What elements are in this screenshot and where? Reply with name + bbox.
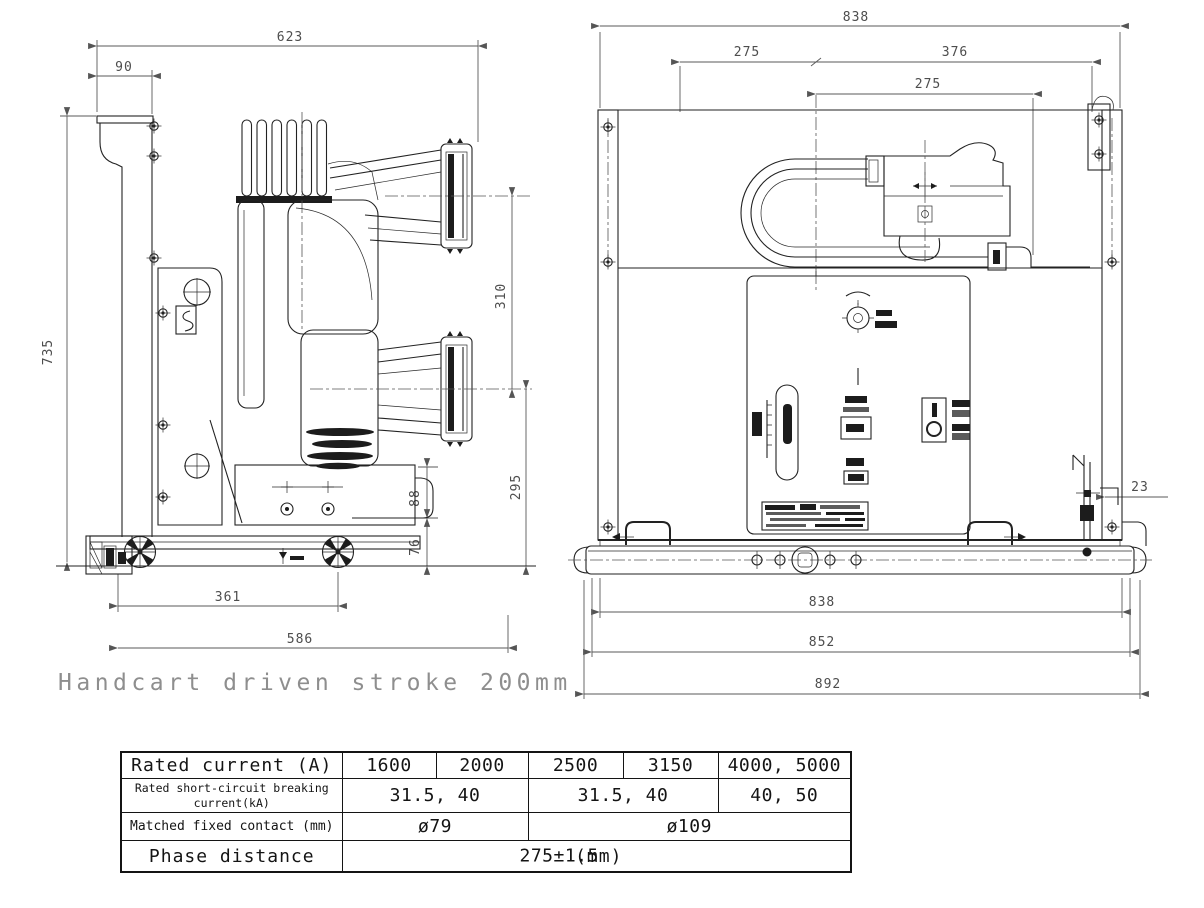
dim-852: 852 bbox=[809, 635, 835, 650]
breaking-current-label: Rated short-circuit breaking current(kA) bbox=[121, 779, 342, 813]
phase-distance-cell: (mm) 275±1.5 bbox=[342, 841, 851, 873]
rated-current-2000: 2000 bbox=[436, 752, 528, 779]
drawing-sheet: 623 90 735 310 295 88 76 361 586 bbox=[0, 0, 1204, 908]
dim-586: 586 bbox=[287, 632, 313, 647]
bolt-icon bbox=[1105, 255, 1120, 270]
breaking-current-value-3: 40, 50 bbox=[718, 779, 851, 813]
table-row: Rated current (A) 1600 2000 2500 3150 40… bbox=[121, 752, 851, 779]
bolt-icon bbox=[1105, 520, 1120, 535]
pole-support-block bbox=[235, 465, 433, 525]
front-view-dimensions: 838 275 376 275 23 838 852 892 bbox=[584, 10, 1168, 699]
dim-275-phase: 275 bbox=[915, 77, 941, 92]
breaking-current-label-line1: Rated short-circuit breaking bbox=[122, 781, 342, 795]
bolt-icon bbox=[147, 119, 162, 134]
opening-button-group bbox=[844, 458, 868, 484]
rated-current-1600: 1600 bbox=[342, 752, 436, 779]
phase-distance-label: Phase distance bbox=[121, 841, 342, 873]
interlock-hook-icon bbox=[183, 311, 193, 331]
rated-current-3150: 3150 bbox=[623, 752, 718, 779]
mechanism-housing bbox=[147, 251, 243, 526]
dim-838-bottom: 838 bbox=[809, 595, 835, 610]
left-handle bbox=[626, 522, 670, 545]
fixed-contact-value-109: ø109 bbox=[528, 813, 851, 841]
fixed-contact-value-79: ø79 bbox=[342, 813, 528, 841]
secondary-circuit bbox=[741, 95, 1090, 292]
breaking-current-value-2: 31.5, 40 bbox=[528, 779, 718, 813]
dim-623: 623 bbox=[277, 30, 303, 45]
phase-distance-value: 275±1.5 bbox=[520, 846, 599, 867]
table-row: Phase distance (mm) 275±1.5 bbox=[121, 841, 851, 873]
fixed-contact-label: Matched fixed contact (mm) bbox=[121, 813, 342, 841]
closing-button-group bbox=[841, 396, 871, 439]
on-off-indicator bbox=[922, 398, 970, 442]
right-handle bbox=[968, 522, 1012, 545]
dim-892: 892 bbox=[815, 677, 841, 692]
bolt-icon bbox=[601, 255, 616, 270]
side-view: 623 90 735 310 295 88 76 361 586 bbox=[41, 30, 536, 653]
side-latch bbox=[1073, 455, 1118, 557]
spring-state-indicator bbox=[842, 292, 897, 333]
dim-76: 76 bbox=[408, 538, 423, 556]
table-row: Rated short-circuit breaking current(kA)… bbox=[121, 779, 851, 813]
dim-376: 376 bbox=[942, 45, 968, 60]
cart-base bbox=[56, 536, 536, 574]
bolt-icon bbox=[601, 520, 616, 535]
dim-23: 23 bbox=[1131, 480, 1149, 495]
charging-handle-slot bbox=[752, 385, 798, 480]
rated-current-label: Rated current (A) bbox=[121, 752, 342, 779]
front-view: 838 275 376 275 23 838 852 892 bbox=[568, 10, 1168, 699]
dim-310: 310 bbox=[494, 283, 509, 309]
table-row: Matched fixed contact (mm) ø79 ø109 bbox=[121, 813, 851, 841]
bolt-icon bbox=[147, 149, 162, 164]
spec-table: Rated current (A) 1600 2000 2500 3150 40… bbox=[120, 751, 852, 873]
bolt-icon bbox=[1092, 147, 1107, 162]
bolt-icon bbox=[1092, 113, 1107, 128]
front-plate bbox=[97, 116, 162, 537]
dim-90: 90 bbox=[115, 60, 133, 75]
bolt-icon bbox=[601, 120, 616, 135]
rated-current-2500: 2500 bbox=[528, 752, 623, 779]
cad-drawing: 623 90 735 310 295 88 76 361 586 bbox=[0, 0, 1204, 745]
bolt-icon bbox=[147, 251, 162, 266]
dim-735: 735 bbox=[41, 339, 56, 365]
frame bbox=[598, 96, 1122, 540]
front-panel bbox=[747, 268, 970, 534]
dim-275-left: 275 bbox=[734, 45, 760, 60]
caption-handcart-stroke: Handcart driven stroke 200mm bbox=[58, 670, 572, 696]
front-wheel bbox=[125, 537, 156, 568]
dim-838-top: 838 bbox=[843, 10, 869, 25]
dim-361: 361 bbox=[215, 590, 241, 605]
breaking-current-label-line2: current(kA) bbox=[122, 796, 342, 810]
breaking-current-value-1: 31.5, 40 bbox=[342, 779, 528, 813]
pole-assembly bbox=[236, 112, 532, 469]
rated-current-4000-5000: 4000, 5000 bbox=[718, 752, 851, 779]
nameplate bbox=[762, 502, 868, 530]
rear-wheel bbox=[323, 537, 354, 568]
dim-295: 295 bbox=[509, 474, 524, 500]
